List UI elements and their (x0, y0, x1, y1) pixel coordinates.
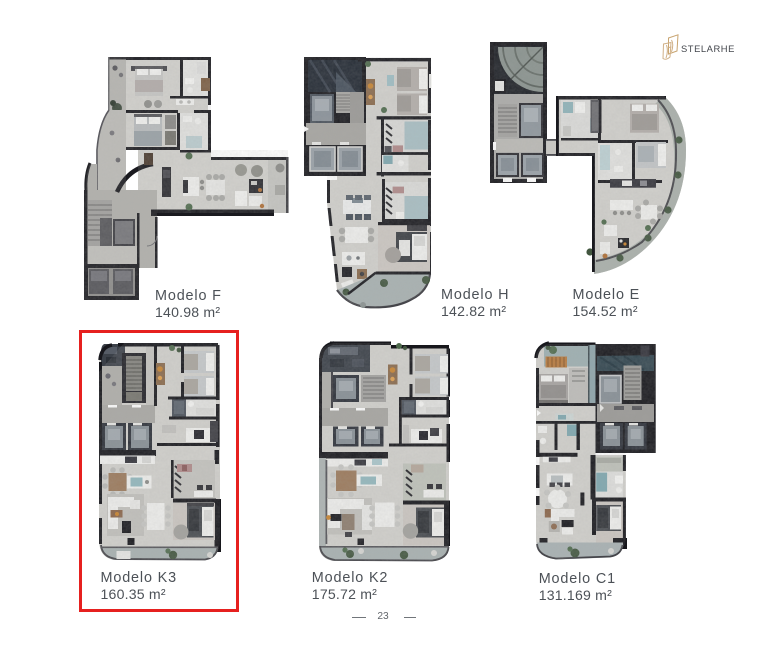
svg-text:STELARHE: STELARHE (681, 43, 735, 54)
